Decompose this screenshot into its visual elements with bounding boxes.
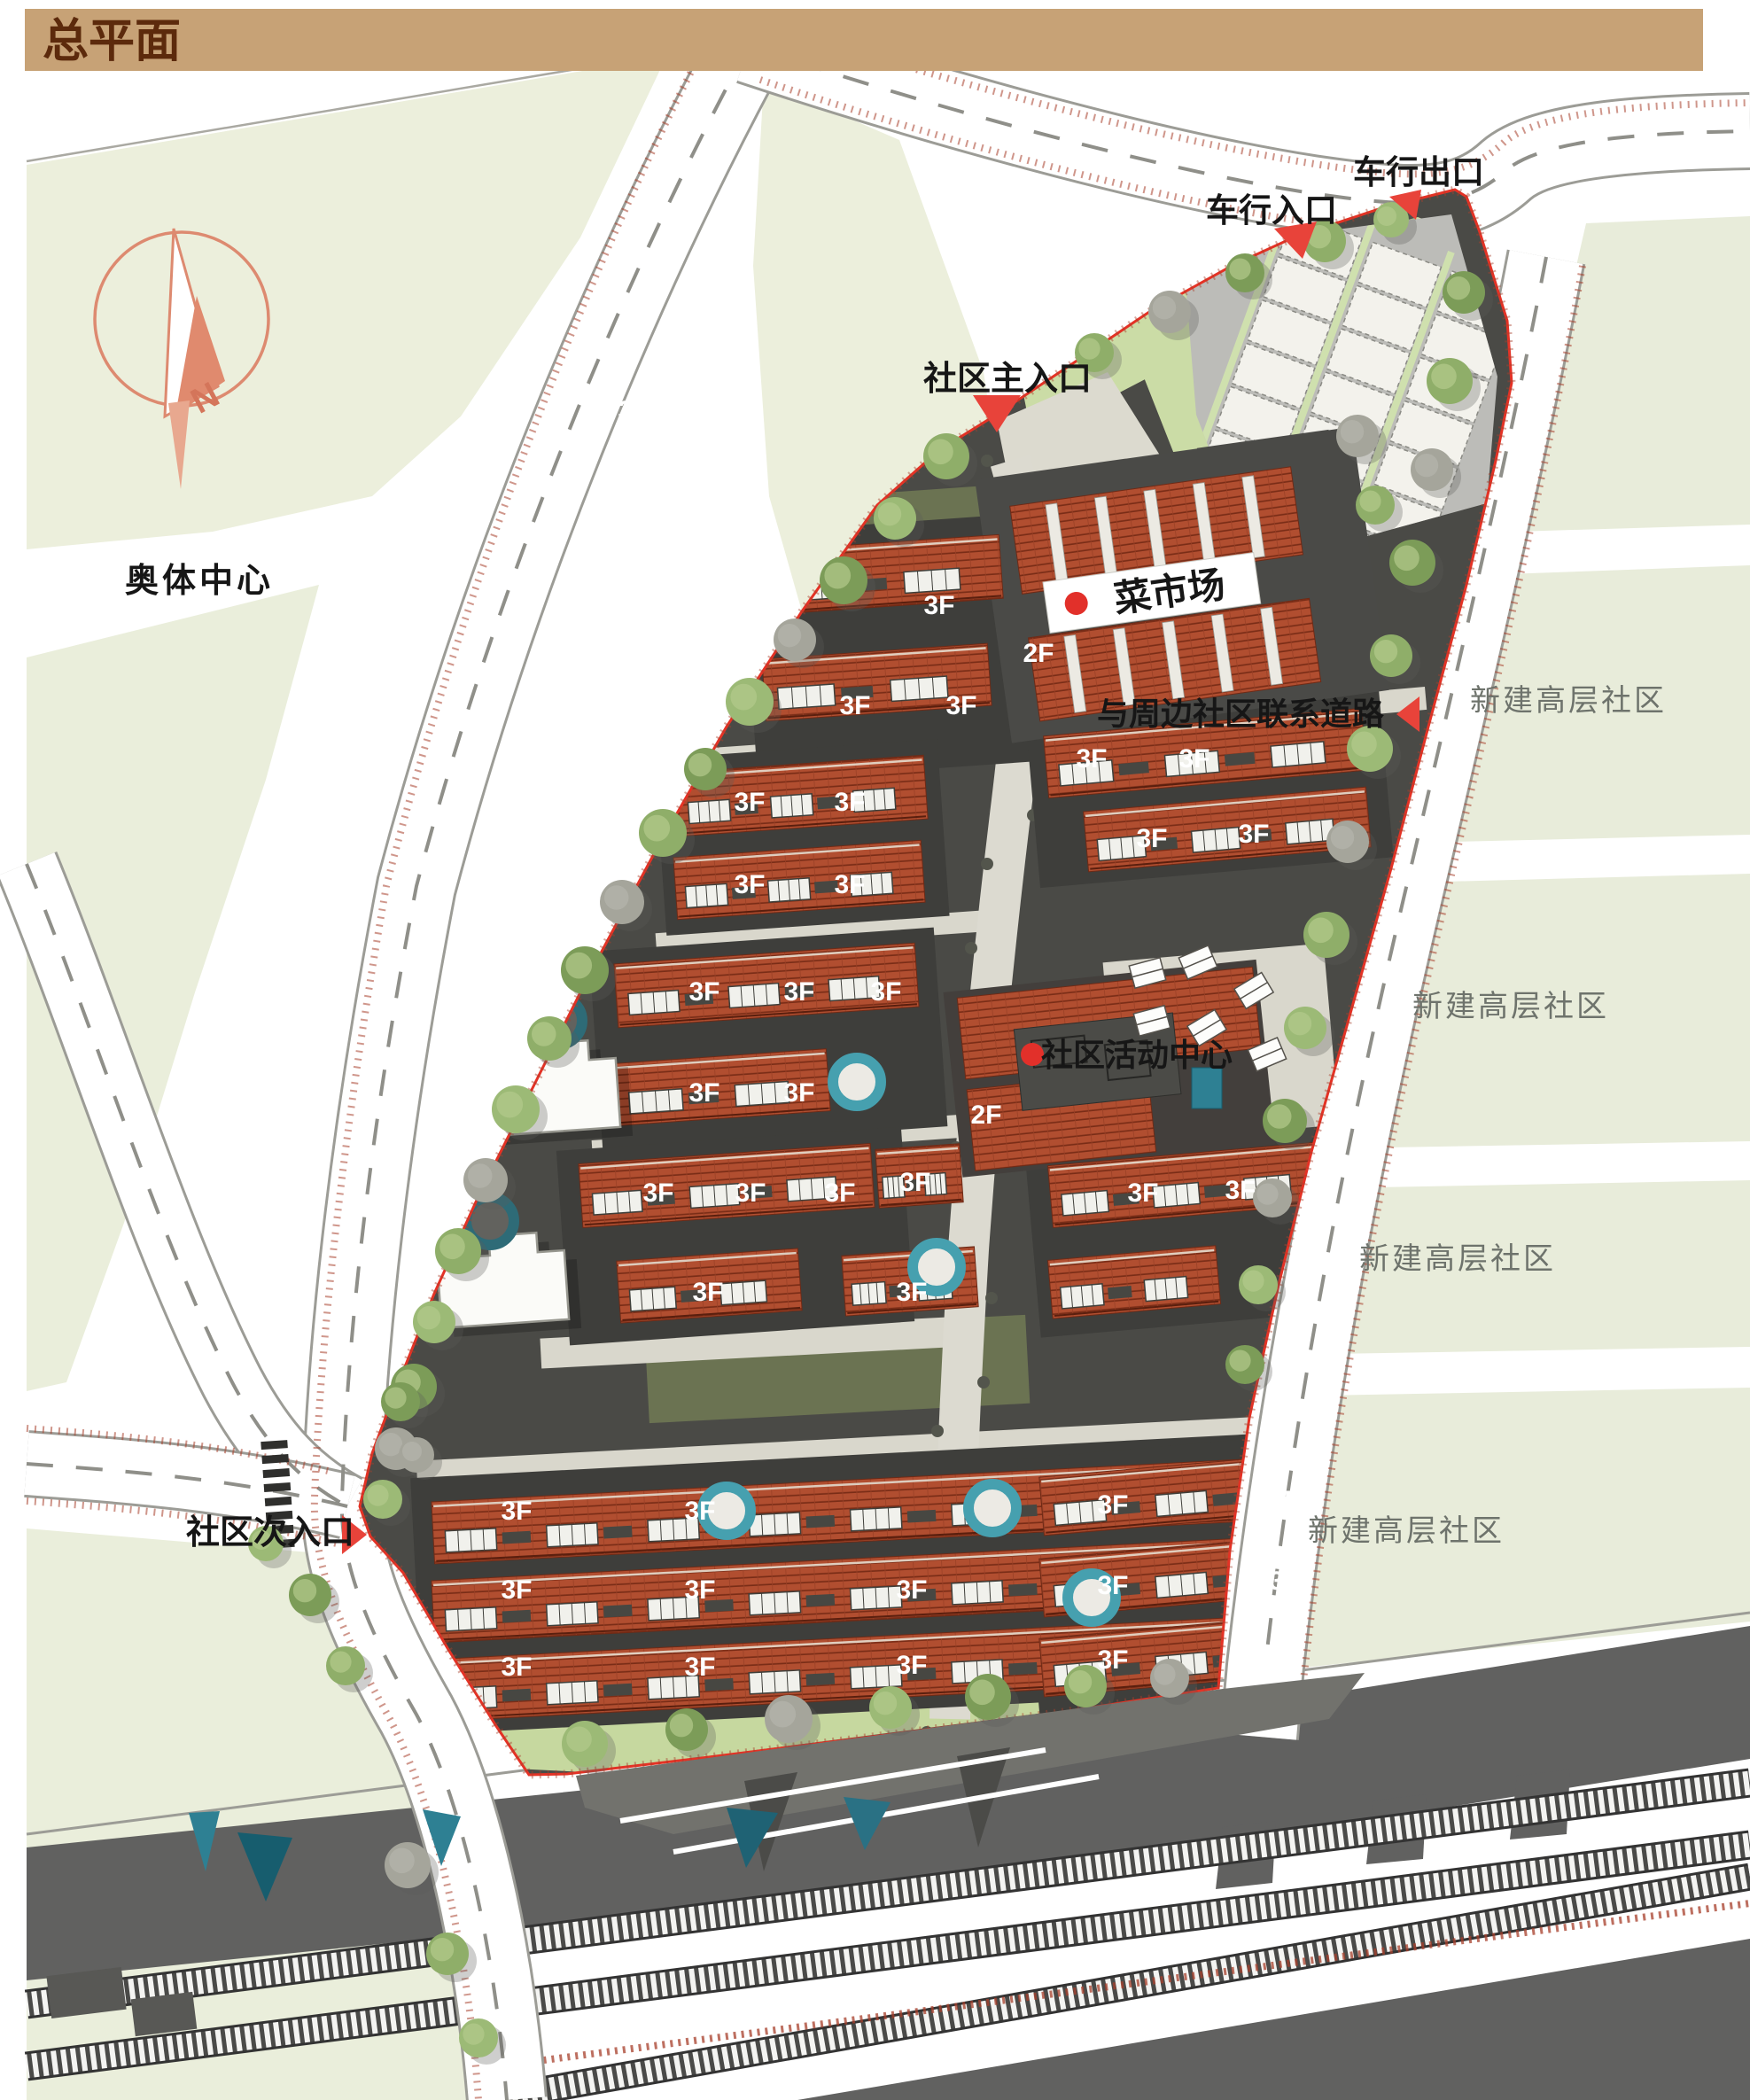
tree-highlight <box>293 1579 316 1602</box>
tree-highlight <box>643 815 670 842</box>
parcel-label: 新建高层社区 <box>1359 1242 1556 1276</box>
floor-label: 3F <box>783 977 814 1007</box>
floor-label: 3F <box>1076 744 1107 774</box>
activity-center-label: 社区活动中心 <box>1041 1037 1233 1073</box>
floor-label: 3F <box>684 1575 715 1605</box>
parcel-label: 新建高层社区 <box>1308 1514 1505 1548</box>
tree-highlight <box>431 1938 454 1961</box>
street-tree <box>981 858 993 870</box>
tree-highlight <box>1242 1271 1264 1292</box>
vehicle-exit-label: 车行出口 <box>1353 154 1484 191</box>
site-plan-page: 菜市场 <box>0 0 1750 2100</box>
tree-highlight <box>417 1306 440 1329</box>
floor-label: 3F <box>734 788 765 817</box>
floor-label: 2F <box>1023 639 1054 668</box>
tree-highlight <box>468 1163 493 1188</box>
secondary-entrance-label: 社区次入口 <box>186 1514 354 1552</box>
tree-highlight <box>389 1848 415 1874</box>
tree-highlight <box>969 1680 995 1706</box>
floor-label: 3F <box>783 1078 814 1108</box>
aoti-label: 奥体中心 <box>125 563 274 600</box>
street-tree <box>985 1292 998 1304</box>
tree-highlight <box>1351 732 1377 758</box>
main-entrance-label: 社区主入口 <box>923 361 1092 398</box>
street-tree <box>931 1425 944 1437</box>
tree-highlight <box>1154 1664 1175 1685</box>
header-background <box>25 9 1703 71</box>
tree-highlight <box>769 1701 796 1728</box>
floor-label: 3F <box>834 788 865 817</box>
skylight <box>907 1510 937 1523</box>
vehicle-entrance-label: 车行入口 <box>1206 192 1337 229</box>
tree-highlight <box>1377 206 1396 226</box>
skylight <box>502 1610 532 1623</box>
skylight <box>502 1689 532 1702</box>
floor-label: 3F <box>735 1178 766 1208</box>
skylight <box>502 1531 532 1544</box>
tree-highlight <box>532 1022 556 1046</box>
tree-highlight <box>402 1442 422 1461</box>
tree-highlight <box>1308 918 1334 944</box>
floor-label: 3F <box>1127 1178 1158 1208</box>
floor-label: 3F <box>1178 744 1209 774</box>
skylight <box>1008 1662 1038 1676</box>
floor-label: 3F <box>839 691 870 720</box>
floor-label: 2F <box>970 1101 1001 1130</box>
floor-label: 3F <box>1238 820 1269 849</box>
tree-highlight <box>874 1692 897 1715</box>
window-strip <box>653 464 709 490</box>
white-building <box>456 864 590 961</box>
floor-label: 3F <box>824 1178 855 1208</box>
tree-highlight <box>330 1652 351 1673</box>
tree-highlight <box>439 1234 465 1260</box>
skylight <box>805 1515 835 1528</box>
header-bar: 总平面 <box>25 9 1703 71</box>
street-tree <box>977 1376 990 1388</box>
floor-label: 3F <box>1225 1176 1256 1205</box>
floor-label: 3F <box>896 1651 927 1680</box>
tree-highlight <box>824 563 851 589</box>
tree-highlight <box>496 1092 523 1118</box>
tree-highlight <box>1078 338 1100 360</box>
tree-highlight <box>1153 296 1176 319</box>
floor-label: 3F <box>684 1653 715 1682</box>
floor-label: 3F <box>501 1497 532 1526</box>
tree-highlight <box>1288 1012 1311 1035</box>
floor-label: 3F <box>618 456 649 486</box>
floor-label: 3F <box>923 591 954 620</box>
tree-highlight <box>385 1388 406 1409</box>
tree-highlight <box>1447 276 1470 299</box>
floor-label: 3F <box>692 1278 723 1307</box>
tree-highlight <box>778 624 801 647</box>
tree-highlight <box>566 1727 592 1753</box>
tree-highlight <box>1229 1350 1250 1372</box>
ring-feature <box>968 1484 1016 1532</box>
tree-highlight <box>878 502 901 525</box>
window-strip <box>664 401 719 427</box>
tree-highlight <box>1256 1184 1278 1205</box>
floor-label: 3F <box>1269 1486 1300 1515</box>
tree-highlight <box>1331 826 1354 849</box>
tree-highlight <box>1415 454 1438 477</box>
floor-label: 3F <box>896 1575 927 1605</box>
window-mullion <box>471 1687 471 1708</box>
floor-label: 3F <box>734 870 765 899</box>
tree-highlight <box>463 2024 484 2045</box>
tree-highlight <box>730 684 757 711</box>
building-shadow <box>513 689 647 787</box>
white-building <box>501 681 634 778</box>
skylight <box>603 1605 633 1618</box>
page-title: 总平面 <box>43 16 181 67</box>
connection-road-label: 与周边社区联系道路 <box>1097 696 1385 732</box>
site-plan-canvas: 菜市场 <box>0 0 1750 2100</box>
window-mullion <box>691 404 693 425</box>
tree-highlight <box>928 439 953 465</box>
tree-highlight <box>670 1714 693 1737</box>
tree-highlight <box>1374 640 1397 663</box>
tree-highlight <box>1359 491 1381 512</box>
tree-highlight <box>1267 1104 1292 1129</box>
skylight <box>603 1526 633 1539</box>
floor-label: 3F <box>870 977 901 1007</box>
skylight <box>1108 1286 1132 1299</box>
floor-label: 3F <box>1136 824 1167 853</box>
window-mullion <box>677 405 679 426</box>
floor-label: 3F <box>834 870 865 899</box>
skylight <box>805 1594 835 1607</box>
floor-label: 3F <box>945 691 976 720</box>
tree-highlight <box>688 753 712 776</box>
floor-label: 3F <box>1097 1645 1128 1675</box>
floor-label: 3F <box>684 1497 715 1526</box>
parcel-label: 新建高层社区 <box>1412 990 1609 1023</box>
parcel-label: 新建高层社区 <box>1470 684 1667 718</box>
street-tree <box>965 942 977 954</box>
floor-label: 3F <box>1269 1567 1300 1596</box>
tree-highlight <box>1229 259 1250 280</box>
tree-highlight <box>1431 364 1457 390</box>
window-mullion <box>666 468 668 489</box>
tree-highlight <box>604 885 629 910</box>
floor-label: 3F <box>642 1178 673 1208</box>
street-tree <box>981 455 993 467</box>
floor-label: 3F <box>1097 1490 1128 1520</box>
tree-highlight <box>1069 1670 1092 1693</box>
floor-label: 3F <box>896 1278 927 1307</box>
skylight <box>805 1673 835 1686</box>
ring-feature <box>833 1058 881 1106</box>
floor-label: 3F <box>1097 1571 1128 1600</box>
window-mullion <box>681 467 682 488</box>
skylight <box>1008 1583 1038 1597</box>
floor-label: 3F <box>688 977 719 1007</box>
tree-highlight <box>565 953 592 979</box>
floor-label: 3F <box>1269 1642 1300 1671</box>
floor-label: 3F <box>899 1168 930 1197</box>
plaza-pool <box>1192 1068 1222 1108</box>
skylight <box>603 1684 633 1697</box>
tree-highlight <box>1394 546 1419 572</box>
floor-label: 3F <box>501 1653 532 1682</box>
window-mullion <box>704 402 706 424</box>
floor-label: 3F <box>501 1575 532 1605</box>
tree-highlight <box>1341 420 1364 443</box>
tree-highlight <box>367 1485 388 1506</box>
floor-label: 3F <box>618 396 649 425</box>
window-mullion <box>694 465 696 486</box>
floor-label: 3F <box>688 1078 719 1108</box>
